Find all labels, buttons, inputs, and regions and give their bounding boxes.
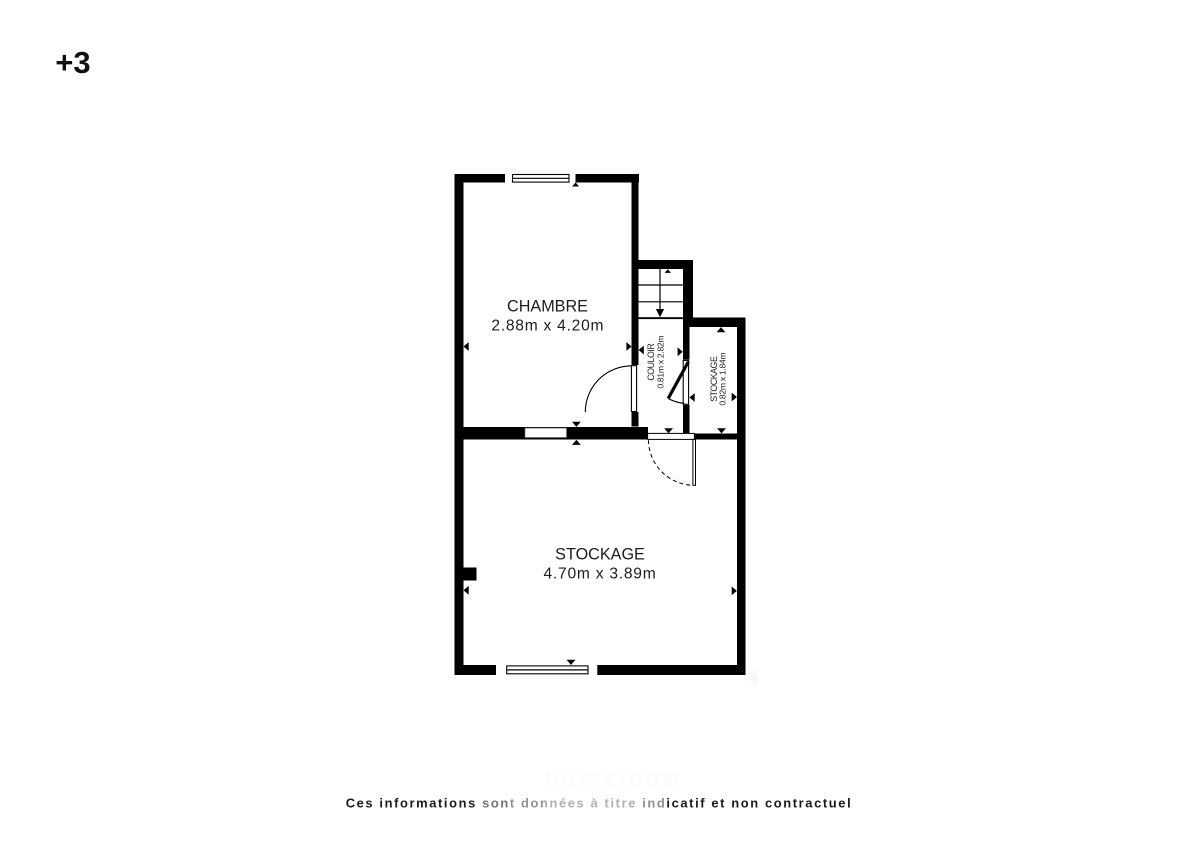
svg-text:STOCKAGE: STOCKAGE <box>555 545 645 563</box>
svg-text:0.81m x 2.82m: 0.81m x 2.82m <box>656 336 666 389</box>
svg-text:homeloop: homeloop <box>544 764 679 792</box>
svg-text:4.70m x 3.89m: 4.70m x 3.89m <box>544 565 657 582</box>
svg-text:0.82m x 1.84m: 0.82m x 1.84m <box>718 353 728 406</box>
svg-text:CHAMBRE: CHAMBRE <box>507 298 588 316</box>
svg-text:2.88m x 4.20m: 2.88m x 4.20m <box>491 317 604 334</box>
svg-text:+3: +3 <box>55 45 90 80</box>
